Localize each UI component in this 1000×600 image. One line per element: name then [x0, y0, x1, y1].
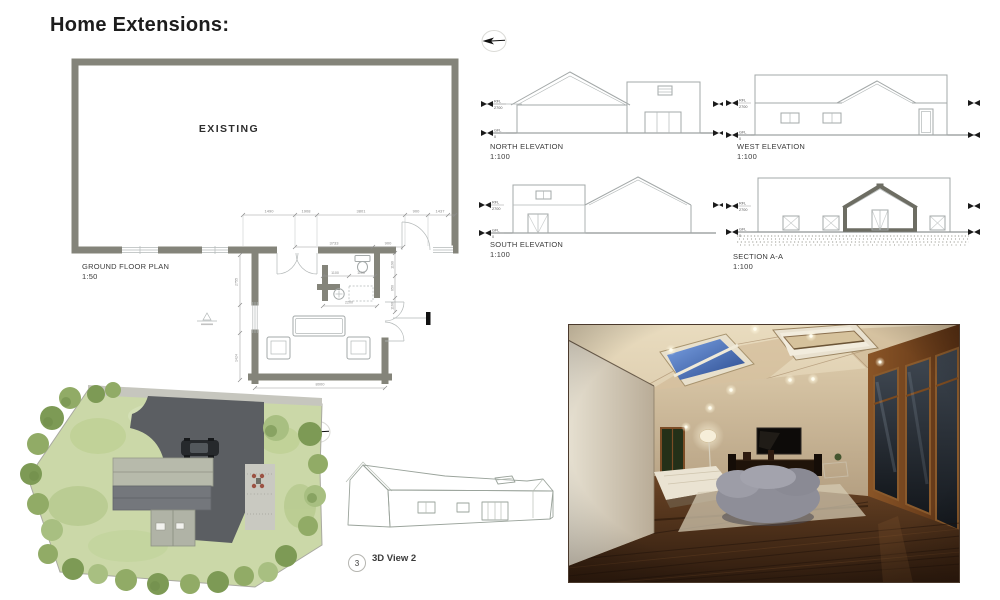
level-marker-right: [968, 132, 980, 138]
window: [536, 191, 551, 199]
level-marker-rfl: RFL 2700: [726, 99, 751, 109]
french-doors: [385, 302, 404, 341]
level-symbol: [197, 313, 217, 325]
svg-text:2755: 2755: [235, 278, 239, 286]
level-marker-right: [713, 202, 723, 208]
house-wireframe: [346, 462, 553, 527]
svg-text:RFL: RFL: [739, 202, 746, 206]
svg-text:0: 0: [739, 137, 741, 141]
west-elevation-caption: WEST ELEVATION1:100: [737, 142, 805, 162]
svg-text:650: 650: [391, 285, 395, 291]
south-elevation-caption: SOUTH ELEVATION1:100: [490, 240, 563, 260]
svg-text:1190: 1190: [391, 261, 395, 269]
level-marker-gfl: GFL 0: [479, 229, 504, 239]
svg-text:1160: 1160: [391, 302, 395, 310]
svg-text:GFL: GFL: [739, 131, 746, 135]
presentation-sheet: Home Extensions: EXISTING: [0, 0, 1000, 600]
north-elevation-caption: NORTH ELEVATION1:100: [490, 142, 563, 162]
svg-text:2700: 2700: [739, 105, 747, 109]
svg-text:2700: 2700: [494, 106, 502, 110]
sofa: [293, 316, 345, 336]
window: [781, 113, 799, 123]
existing-walls: [75, 62, 455, 250]
dim-chain-right: 1190 650 1160: [391, 251, 398, 314]
svg-text:RFL: RFL: [492, 201, 499, 205]
svg-text:GFL: GFL: [492, 229, 499, 233]
window: [930, 216, 945, 230]
basin: [334, 289, 344, 299]
svg-text:2700: 2700: [492, 207, 500, 211]
dim-chain-left: 2755 1424: [235, 253, 243, 382]
level-marker-gfl: GFL 0: [481, 129, 506, 139]
svg-text:GFL: GFL: [494, 129, 501, 133]
svg-text:1437: 1437: [436, 209, 446, 214]
site-plan: [18, 376, 338, 600]
double-doors: [272, 245, 323, 274]
double-door: [528, 214, 548, 233]
view-number: 3: [355, 559, 360, 568]
armchair-left: [267, 337, 290, 359]
svg-text:2200: 2200: [345, 301, 353, 305]
svg-text:1100: 1100: [357, 271, 365, 275]
window: [783, 216, 799, 230]
sliding-door: [645, 112, 681, 133]
extension-window: [253, 302, 257, 333]
level-marker-rfl: RFL 2700: [726, 202, 751, 212]
level-marker-right: [968, 203, 980, 209]
car: [181, 438, 219, 458]
svg-text:3733: 3733: [330, 241, 340, 246]
existing-window-2: [202, 246, 228, 255]
svg-text:900: 900: [385, 241, 392, 246]
svg-text:1100: 1100: [331, 271, 339, 275]
svg-text:0: 0: [494, 135, 496, 139]
rooflight: [156, 523, 165, 530]
french-door: [482, 502, 508, 520]
svg-text:0: 0: [739, 234, 741, 238]
svg-text:RFL: RFL: [494, 100, 501, 104]
svg-text:1490: 1490: [265, 209, 275, 214]
svg-text:RFL: RFL: [739, 99, 746, 103]
svg-text:2700: 2700: [739, 208, 747, 212]
vignette: [568, 324, 960, 583]
view-caption: 3 3D View 2: [349, 553, 417, 572]
section-caption: SECTION A-A1:100: [733, 252, 783, 272]
existing-window-1: [122, 246, 158, 255]
svg-text:3801: 3801: [357, 209, 367, 214]
ground-hatch: [737, 236, 969, 245]
level-marker-gfl: GFL 0: [726, 131, 751, 141]
vent: [658, 86, 672, 95]
interior-render: [568, 324, 960, 583]
svg-text:900: 900: [413, 209, 420, 214]
level-marker-right: [968, 100, 980, 106]
existing-window-3: [433, 246, 453, 255]
3d-view-sketch: 3 3D View 2: [340, 422, 575, 577]
window: [457, 503, 469, 512]
page-title: Home Extensions:: [50, 14, 229, 37]
armchair-right: [347, 337, 370, 359]
window: [823, 113, 841, 123]
shower-dashed: [349, 286, 373, 301]
existing-room-label: EXISTING: [199, 123, 259, 135]
svg-text:GFL: GFL: [739, 228, 746, 232]
view-label: 3D View 2: [372, 553, 416, 564]
section-marker: [393, 312, 431, 325]
north-elevation-drawing: RFL 2700 GFL 0: [478, 48, 723, 148]
window: [823, 216, 839, 230]
level-marker-rfl: RFL 2700: [481, 100, 506, 110]
level-marker-right: [968, 229, 980, 235]
extension-walls: [252, 250, 389, 381]
toilet: [355, 256, 370, 273]
level-marker-right: [713, 130, 723, 136]
window: [418, 502, 435, 513]
rooflight: [176, 523, 184, 529]
svg-text:0: 0: [492, 235, 494, 239]
door: [919, 109, 933, 135]
level-marker-rfl: RFL 2700: [479, 201, 504, 211]
svg-text:1908: 1908: [302, 209, 312, 214]
west-elevation-drawing: RFL 2700 GFL 0: [725, 48, 980, 148]
patio: [245, 464, 275, 530]
floor-plan-caption: GROUND FLOOR PLAN1:50: [82, 262, 169, 282]
svg-text:1424: 1424: [235, 354, 239, 362]
internal-doors: [872, 210, 888, 230]
level-marker-right: [713, 101, 723, 107]
